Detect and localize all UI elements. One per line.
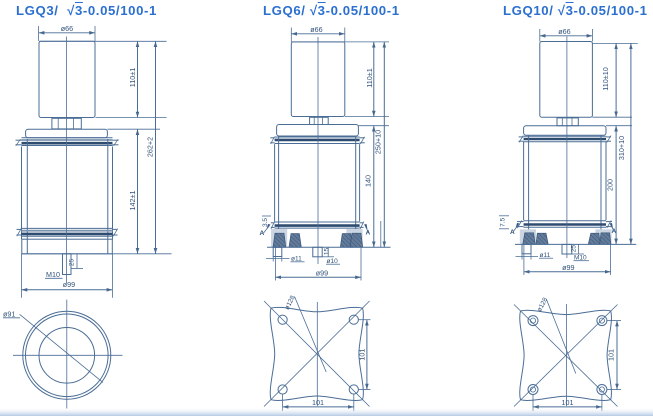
svg-text:15: 15 [324, 248, 331, 256]
svg-text:ø66: ø66 [61, 24, 73, 33]
svg-text:142±1: 142±1 [128, 191, 137, 211]
svg-text:101: 101 [607, 349, 616, 361]
svg-text:101: 101 [562, 398, 574, 407]
svg-text:A: A [260, 230, 265, 237]
svg-text:25: 25 [570, 245, 577, 253]
svg-text:101: 101 [357, 349, 366, 361]
svg-text:101: 101 [312, 398, 324, 407]
svg-text:250+10: 250+10 [373, 130, 382, 154]
svg-text:M10: M10 [46, 270, 60, 279]
svg-text:25: 25 [69, 259, 76, 267]
svg-text:ø91: ø91 [3, 310, 15, 319]
svg-text:ø99: ø99 [562, 263, 574, 272]
svg-text:ø128: ø128 [536, 296, 549, 313]
svg-text:ø99: ø99 [63, 280, 75, 289]
svg-text:200: 200 [605, 179, 614, 191]
svg-text:ø99: ø99 [316, 269, 328, 278]
svg-text:310+10: 310+10 [617, 136, 626, 160]
svg-text:140: 140 [364, 175, 373, 187]
svg-text:3.5: 3.5 [262, 218, 269, 227]
svg-text:7.5: 7.5 [500, 217, 507, 226]
svg-text:A: A [366, 230, 371, 237]
svg-text:262+2: 262+2 [146, 137, 155, 157]
svg-text:ø66: ø66 [310, 25, 322, 34]
svg-text:ø66: ø66 [558, 27, 570, 36]
svg-text:110±10: 110±10 [601, 67, 610, 90]
svg-text:110±1: 110±1 [365, 68, 374, 87]
svg-text:110±1: 110±1 [128, 68, 137, 87]
